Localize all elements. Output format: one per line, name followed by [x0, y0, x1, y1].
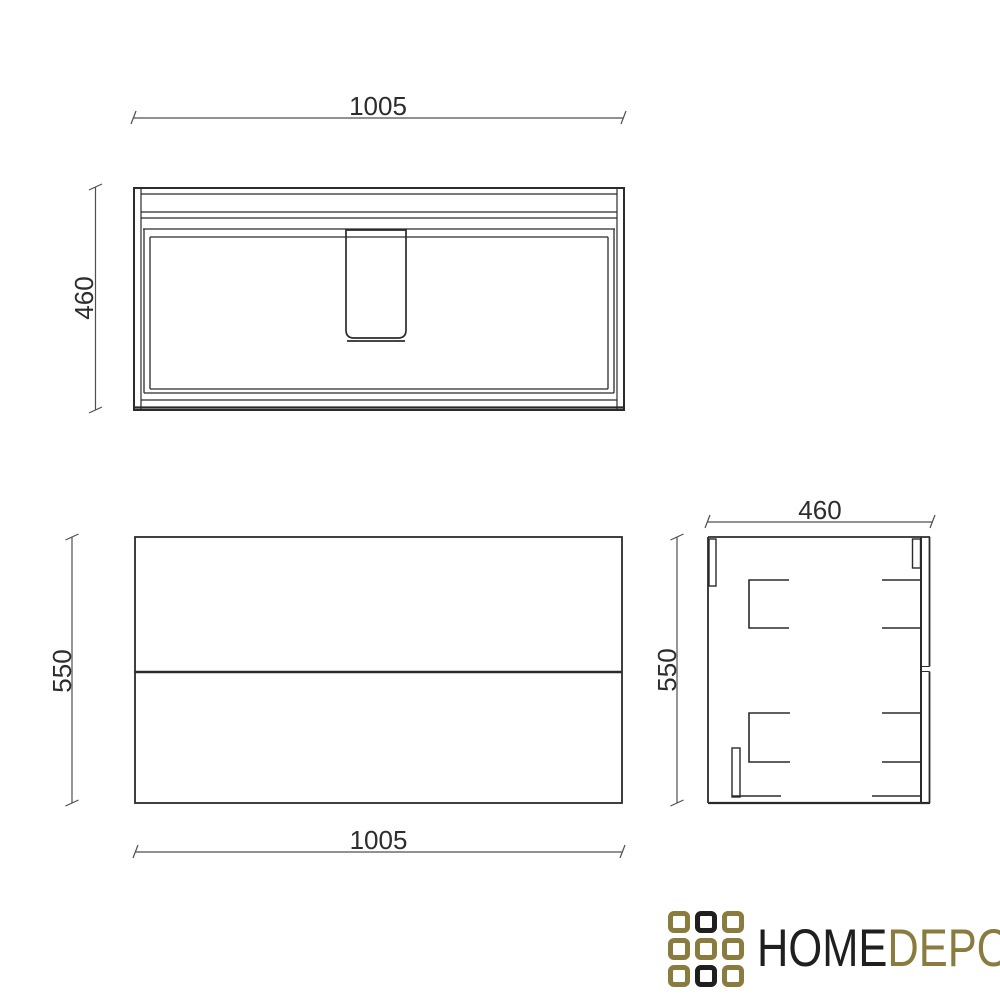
- side-width-label: 460: [798, 495, 841, 525]
- logo-word-secondary: DEPO: [887, 911, 1000, 987]
- front-view: [135, 537, 622, 803]
- side-view: [708, 537, 930, 803]
- side-height-label: 550: [652, 648, 682, 691]
- bottom-left-bracket: [732, 748, 740, 797]
- front-height-label: 550: [47, 649, 77, 692]
- side-view-dimensions: 460 550: [652, 495, 935, 806]
- logo-grid-cell-gold: [722, 965, 744, 987]
- lower-drawer-slide: [749, 713, 790, 762]
- logo-grid-cell-gold: [668, 911, 690, 933]
- brand-logo: HOMEDEPO: [668, 911, 1000, 987]
- logo-grid: [668, 911, 744, 987]
- logo-wordmark: HOMEDEPO: [757, 911, 1000, 987]
- right-drawer-rails: [882, 580, 921, 762]
- front-view-dimensions: 550 1005: [47, 534, 625, 858]
- top-view-basin-recess: [141, 229, 617, 400]
- top-left-bracket: [709, 539, 716, 586]
- top-view: [134, 188, 624, 410]
- wall-junction: [921, 667, 930, 672]
- technical-drawing: 1005 460 550 1005 460 550: [0, 0, 1000, 1000]
- logo-word-primary: HOME: [757, 911, 887, 987]
- upper-drawer-slide: [749, 580, 789, 628]
- top-right-bracket: [913, 539, 921, 568]
- top-width-label: 1005: [349, 91, 407, 121]
- top-view-dimensions: 1005 460: [69, 91, 626, 413]
- logo-grid-cell-black: [695, 965, 717, 987]
- logo-grid-cell-gold: [695, 938, 717, 960]
- front-width-label: 1005: [350, 825, 408, 855]
- top-depth-label: 460: [69, 276, 99, 319]
- top-view-outline: [134, 188, 624, 410]
- top-view-side-walls: [141, 188, 617, 410]
- top-view-back-rail: [141, 194, 617, 218]
- faucet-hole: [346, 230, 406, 341]
- logo-grid-cell-gold: [668, 938, 690, 960]
- logo-grid-cell-gold: [722, 938, 744, 960]
- logo-grid-cell-black: [695, 911, 717, 933]
- logo-grid-cell-gold: [722, 911, 744, 933]
- logo-grid-cell-gold: [668, 965, 690, 987]
- front-view-outline: [135, 537, 622, 803]
